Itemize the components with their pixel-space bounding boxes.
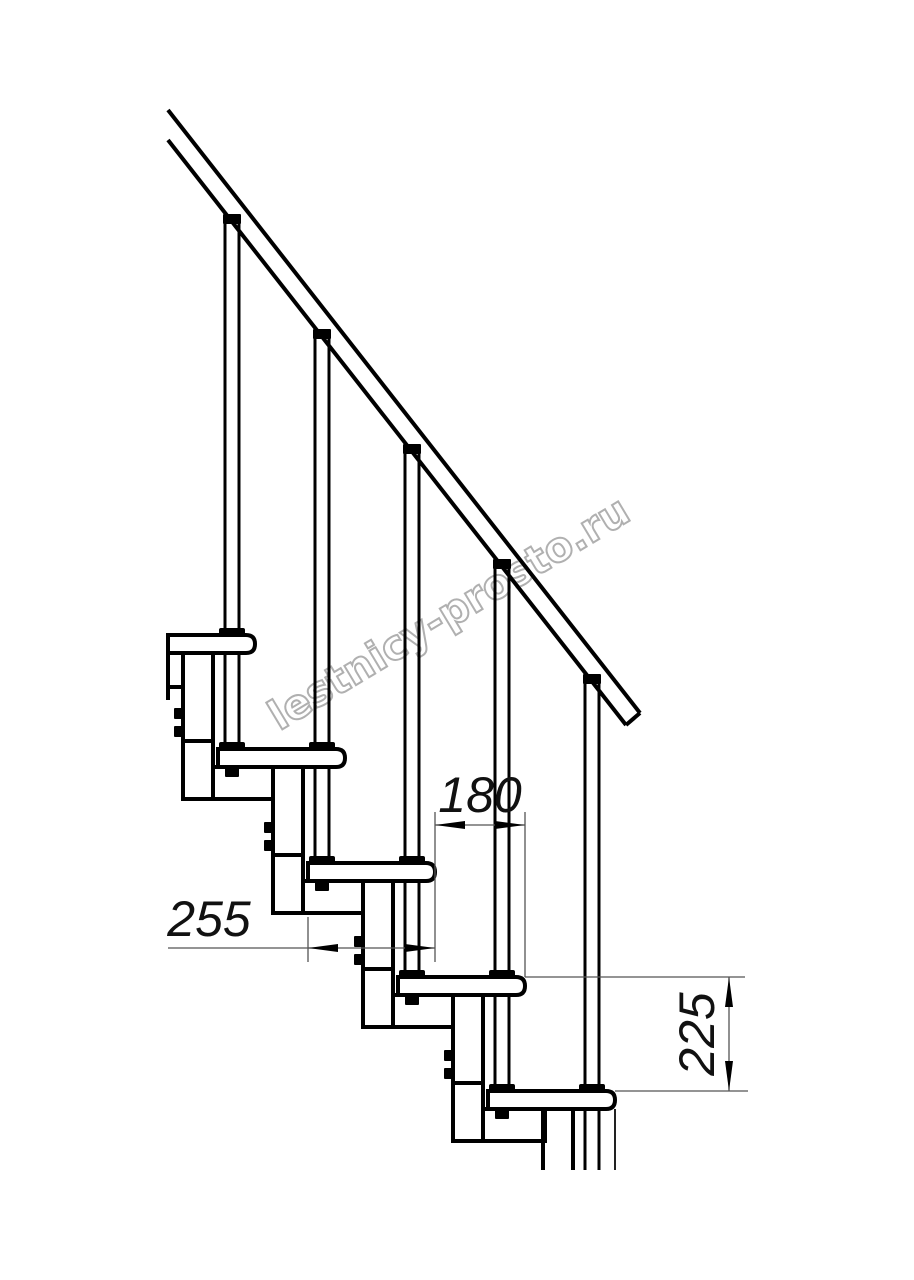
clamp-bolt-icon <box>264 840 274 851</box>
module-column <box>273 767 303 913</box>
tread-collar-icon <box>219 742 245 749</box>
arrowhead-up-icon <box>725 977 733 1007</box>
baluster-4 <box>489 559 515 1119</box>
baluster-3 <box>399 444 425 1005</box>
fastening-nut-icon <box>495 1110 509 1119</box>
tread-collar-icon <box>219 628 245 635</box>
tread-collar-icon <box>309 856 335 863</box>
dimension-step-run: 180 <box>435 767 525 977</box>
module-column <box>183 653 213 799</box>
handrail-end-cap <box>626 713 640 725</box>
arrowhead-down-icon <box>725 1061 733 1091</box>
baluster-lower-segment <box>585 1109 599 1170</box>
clamp-bolt-icon <box>354 954 364 965</box>
tread-collar-icon <box>399 856 425 863</box>
tread-1 <box>168 635 255 653</box>
dimension-label-180: 180 <box>438 767 522 823</box>
clamp-bolt-icon <box>264 822 274 833</box>
clamp-bolt-icon <box>444 1050 454 1061</box>
tread-3 <box>308 863 435 881</box>
arrowhead-left-icon <box>308 944 338 952</box>
fastening-nut-icon <box>405 996 419 1005</box>
fastening-nut-icon <box>315 882 329 891</box>
baluster-lower-segment <box>315 767 329 863</box>
fastening-nut-icon <box>225 768 239 777</box>
clamp-bolt-icon <box>174 708 184 719</box>
dimension-label-225: 225 <box>669 992 725 1077</box>
baluster-2 <box>309 329 335 891</box>
dimension-step-rise: 225 <box>525 977 748 1091</box>
clamp-bolt-icon <box>174 726 184 737</box>
baluster-lower-segment <box>225 653 239 749</box>
tread-collar-icon <box>579 1084 605 1091</box>
baluster-lower-segment <box>405 881 419 977</box>
tread-collar-icon <box>399 970 425 977</box>
dimension-label-255: 255 <box>166 891 251 947</box>
staircase-drawing-page: 180 255 225 lestnicy-prosto.ru <box>0 0 914 1280</box>
module-column <box>453 995 483 1141</box>
baluster-lower-segment <box>495 995 509 1091</box>
support-module-5 <box>543 1109 573 1170</box>
baluster-upper-segment <box>585 682 599 1091</box>
baluster-upper-segment <box>225 222 239 635</box>
clamp-bolt-icon <box>444 1068 454 1079</box>
tread-collar-icon <box>309 742 335 749</box>
tread-1-rear-edge <box>168 653 183 700</box>
tread-collar-icon <box>489 970 515 977</box>
watermark-text: lestnicy-prosto.ru <box>260 486 638 739</box>
baluster-1 <box>219 214 245 777</box>
staircase-side-elevation-drawing: 180 255 225 lestnicy-prosto.ru <box>0 0 914 1280</box>
tread-4 <box>398 977 525 995</box>
tread-collar-icon <box>489 1084 515 1091</box>
tread-2 <box>218 749 345 767</box>
tread-5 <box>488 1091 615 1109</box>
module-column <box>363 881 393 1027</box>
clamp-bolt-icon <box>354 936 364 947</box>
